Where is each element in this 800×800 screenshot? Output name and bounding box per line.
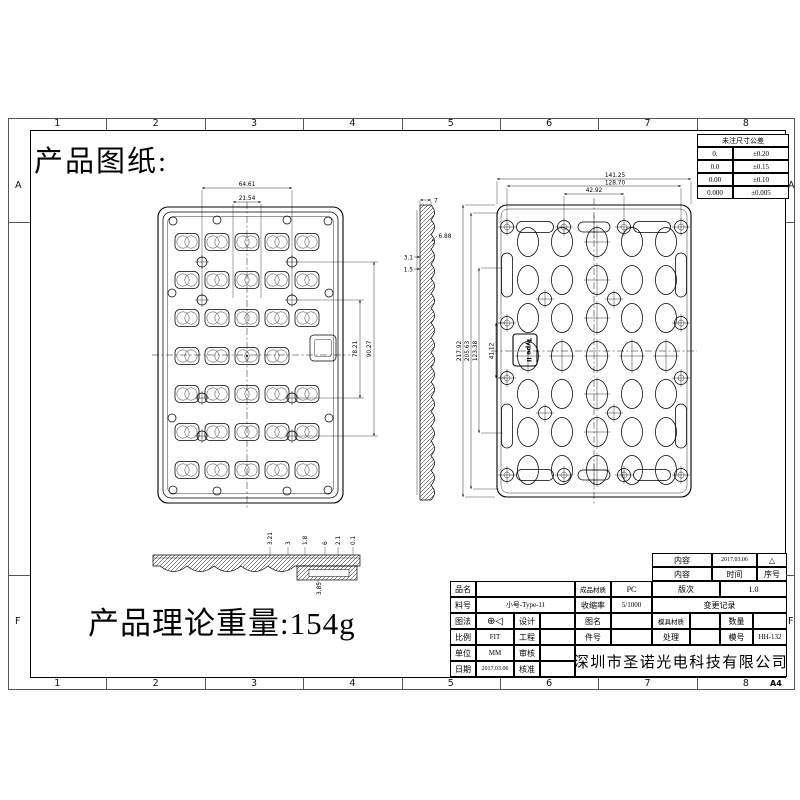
lens-dome bbox=[656, 380, 677, 409]
lens-cell bbox=[205, 424, 229, 441]
zone-tick bbox=[500, 118, 501, 130]
zone-tick bbox=[598, 118, 599, 130]
lens-dome bbox=[552, 380, 573, 409]
lens-cell bbox=[265, 424, 289, 441]
approve-value bbox=[540, 661, 575, 677]
part-code-value: 小号-Type-11 bbox=[476, 597, 575, 613]
treatment-label: 处理 bbox=[652, 629, 690, 645]
engineer-value bbox=[540, 629, 575, 645]
zone-col-bottom-6: 6 bbox=[546, 678, 552, 689]
zone-tick bbox=[8, 575, 30, 576]
dim-back-h3: 123.38 bbox=[473, 341, 479, 362]
tolerance-cell: ±0.005 bbox=[733, 186, 789, 199]
lens-cell bbox=[175, 424, 199, 441]
lens-cell bbox=[205, 386, 229, 403]
tolerance-cell: 0. bbox=[697, 147, 733, 160]
zone-col-top-5: 5 bbox=[448, 118, 454, 129]
lens-cell bbox=[175, 234, 199, 251]
zone-row-left-F: F bbox=[15, 616, 20, 627]
lens-cell bbox=[295, 386, 319, 403]
shrink-label: 收缩率 bbox=[575, 597, 611, 613]
material-label: 成品材质 bbox=[575, 581, 611, 597]
dim-back-h2: 205.63 bbox=[465, 341, 471, 362]
sheet-size-label: A4 bbox=[770, 679, 782, 688]
lens-dome bbox=[622, 266, 643, 295]
back-dome-grid bbox=[515, 225, 679, 487]
front-view: 64.61 21.54 78.21 90.27 bbox=[150, 178, 395, 515]
lens-dome bbox=[656, 266, 677, 295]
lens-cell bbox=[175, 310, 199, 327]
zone-tick bbox=[205, 678, 206, 690]
changelog-triangle: △ bbox=[757, 553, 787, 567]
product-name-value bbox=[476, 581, 575, 597]
part-no-label: 件号 bbox=[575, 629, 611, 645]
qty-value bbox=[753, 613, 787, 629]
lens-dome bbox=[656, 304, 677, 333]
tolerance-cell: 0.000 bbox=[697, 186, 733, 199]
lens-cell bbox=[175, 272, 199, 289]
back-view: Type II 141.25 128.70 42.92 217.92 bbox=[455, 170, 700, 510]
lens-dome bbox=[622, 228, 643, 257]
lens-cell bbox=[265, 272, 289, 289]
weight-note: 产品理论重量:154g bbox=[88, 598, 356, 643]
lens-cell bbox=[295, 272, 319, 289]
zone-col-bottom-7: 7 bbox=[644, 678, 650, 689]
lens-cell bbox=[295, 424, 319, 441]
shrink-value: 5/1000 bbox=[611, 597, 652, 613]
dim-bot-6: 0.1 bbox=[351, 535, 357, 545]
tolerance-cell: ±0.20 bbox=[733, 147, 789, 160]
zone-tick bbox=[500, 678, 501, 690]
changelog-time-header: 时间 bbox=[712, 567, 757, 581]
zone-col-bottom-3: 3 bbox=[251, 678, 257, 689]
lens-cell bbox=[205, 310, 229, 327]
drawing-name-value bbox=[611, 613, 652, 629]
changelog-seq-header: 序号 bbox=[757, 567, 787, 581]
lens-cell bbox=[295, 310, 319, 327]
lens-cell bbox=[175, 348, 199, 365]
part-no-value bbox=[611, 629, 652, 645]
lens-cell bbox=[205, 272, 229, 289]
dim-side-31: 3.1 bbox=[404, 256, 414, 262]
lens-cell bbox=[205, 234, 229, 251]
zone-row-left-A: A bbox=[15, 180, 22, 191]
dim-front-width-outer: 64.61 bbox=[239, 182, 256, 188]
side-section-profile bbox=[420, 205, 435, 500]
dim-bot-4: 6 bbox=[323, 541, 329, 545]
lens-dome bbox=[518, 266, 539, 295]
unit-value: MM bbox=[476, 645, 514, 661]
product-name-label: 品名 bbox=[450, 581, 476, 597]
bottom-section-view: 3.21 3 1.8 6 2.1 0.1 3.85 bbox=[145, 525, 370, 595]
front-type-square bbox=[310, 335, 336, 361]
dim-front-width-inner: 21.54 bbox=[239, 196, 256, 202]
lens-cell bbox=[175, 462, 199, 479]
dim-side-15: 1.5 bbox=[404, 268, 414, 274]
review-label: 审核 bbox=[514, 645, 540, 661]
lens-dome bbox=[622, 380, 643, 409]
lens-cell bbox=[175, 386, 199, 403]
scale-value: FIT bbox=[476, 629, 514, 645]
changelog-date: 2017.03.06 bbox=[712, 553, 757, 567]
lens-dome bbox=[656, 228, 677, 257]
unit-label: 单位 bbox=[450, 645, 476, 661]
lens-cell bbox=[295, 462, 319, 479]
zone-tick bbox=[106, 118, 107, 130]
tolerance-cell: ±0.10 bbox=[733, 173, 789, 186]
dim-side-688: 6.88 bbox=[439, 234, 452, 240]
zone-row-right-A: A bbox=[788, 180, 795, 191]
zone-tick bbox=[303, 118, 304, 130]
lens-cell bbox=[265, 462, 289, 479]
dim-bot-2: 3 bbox=[286, 541, 292, 545]
lens-cell bbox=[295, 234, 319, 251]
zone-tick bbox=[8, 222, 30, 223]
lens-cell bbox=[265, 348, 289, 365]
zone-tick bbox=[402, 118, 403, 130]
zone-col-bottom-4: 4 bbox=[349, 678, 355, 689]
zone-col-top-2: 2 bbox=[153, 118, 159, 129]
zone-tick bbox=[786, 222, 795, 223]
lens-dome bbox=[552, 418, 573, 447]
lens-dome bbox=[622, 418, 643, 447]
dim-front-height-outer: 90.27 bbox=[367, 340, 373, 357]
mold-no-label: 模号 bbox=[720, 629, 753, 645]
dim-front-height-inner: 78.21 bbox=[353, 340, 359, 357]
company-name: 深圳市圣诺光电科技有限公司 bbox=[575, 645, 787, 677]
approve-label: 核准 bbox=[514, 661, 540, 677]
tolerance-cell: ±0.15 bbox=[733, 160, 789, 173]
zone-col-top-8: 8 bbox=[743, 118, 749, 129]
lens-dome bbox=[622, 456, 643, 485]
material-value: PC bbox=[611, 581, 652, 597]
lens-dome bbox=[518, 380, 539, 409]
zone-col-top-7: 7 bbox=[644, 118, 650, 129]
zone-row-right-F: F bbox=[788, 616, 793, 627]
drawing-name-label: 图名 bbox=[575, 613, 611, 629]
dim-bot-7: 3.85 bbox=[317, 582, 323, 595]
design-label: 设计 bbox=[514, 613, 540, 629]
projection-symbol-icon: ⊕◁ bbox=[476, 613, 514, 629]
lens-dome bbox=[552, 304, 573, 333]
date-label: 日期 bbox=[450, 661, 476, 677]
scale-label: 比例 bbox=[450, 629, 476, 645]
lens-dome bbox=[518, 304, 539, 333]
engineer-label: 工程 bbox=[514, 629, 540, 645]
zone-tick bbox=[697, 118, 698, 130]
design-value bbox=[540, 613, 575, 629]
dim-back-w1: 141.25 bbox=[605, 173, 626, 179]
zone-tick bbox=[106, 678, 107, 690]
mold-material-value bbox=[690, 613, 720, 629]
lens-dome bbox=[552, 456, 573, 485]
zone-tick bbox=[598, 678, 599, 690]
dim-back-h1: 217.92 bbox=[457, 341, 463, 362]
revision-value: 1.0 bbox=[720, 581, 787, 597]
zone-tick bbox=[786, 575, 795, 576]
changelog-content-header: 内容 bbox=[652, 567, 712, 581]
page-title: 产品图纸: bbox=[34, 138, 168, 180]
projection-label: 图法 bbox=[450, 613, 476, 629]
part-code-label: 料号 bbox=[450, 597, 476, 613]
tolerance-cell: 0.00 bbox=[697, 173, 733, 186]
type-label: Type II bbox=[525, 338, 533, 362]
lens-dome bbox=[518, 228, 539, 257]
back-type-label-box: Type II bbox=[513, 334, 537, 366]
lens-dome bbox=[518, 418, 539, 447]
dim-back-h4: 41.12 bbox=[490, 342, 496, 359]
tolerance-cell: 0.0 bbox=[697, 160, 733, 173]
tolerance-header: 未注尺寸公差 bbox=[697, 134, 789, 147]
zone-col-top-4: 4 bbox=[349, 118, 355, 129]
change-record-label: 变更记录 bbox=[652, 597, 787, 613]
lens-dome bbox=[552, 266, 573, 295]
lens-dome bbox=[552, 228, 573, 257]
zone-tick bbox=[303, 678, 304, 690]
date-value: 2017.03.06 bbox=[476, 661, 514, 677]
lens-cell bbox=[265, 386, 289, 403]
zone-col-bottom-2: 2 bbox=[153, 678, 159, 689]
zone-col-bottom-5: 5 bbox=[448, 678, 454, 689]
qty-label: 数量 bbox=[720, 613, 753, 629]
changelog-content-label: 内容 bbox=[652, 553, 712, 567]
zone-tick bbox=[402, 678, 403, 690]
dim-side-7: 7 bbox=[434, 199, 438, 205]
dim-back-w2: 128.70 bbox=[605, 181, 626, 187]
zone-col-top-1: 1 bbox=[54, 118, 60, 129]
zone-tick bbox=[205, 118, 206, 130]
mold-no-value: HH-132 bbox=[753, 629, 787, 645]
treatment-value bbox=[690, 629, 720, 645]
zone-col-top-3: 3 bbox=[251, 118, 257, 129]
revision-label: 版次 bbox=[652, 581, 720, 597]
zone-tick bbox=[697, 678, 698, 690]
lens-cell bbox=[265, 234, 289, 251]
lens-dome bbox=[622, 304, 643, 333]
zone-col-bottom-1: 1 bbox=[54, 678, 60, 689]
zone-col-bottom-8: 8 bbox=[743, 678, 749, 689]
dim-back-w3: 42.92 bbox=[586, 188, 603, 194]
review-value bbox=[540, 645, 575, 661]
dim-bot-1: 3.21 bbox=[268, 532, 274, 545]
dim-bot-5: 2.1 bbox=[336, 535, 342, 545]
mold-material-label: 模具材质 bbox=[652, 613, 690, 629]
lens-dome bbox=[656, 418, 677, 447]
lens-cell bbox=[205, 462, 229, 479]
zone-col-top-6: 6 bbox=[546, 118, 552, 129]
lens-cell bbox=[205, 348, 229, 365]
dim-bot-3: 1.8 bbox=[303, 535, 309, 545]
engineering-drawing-page: { "texts": { "title": "产品图纸:", "weight":… bbox=[0, 0, 800, 800]
lens-cell bbox=[265, 310, 289, 327]
